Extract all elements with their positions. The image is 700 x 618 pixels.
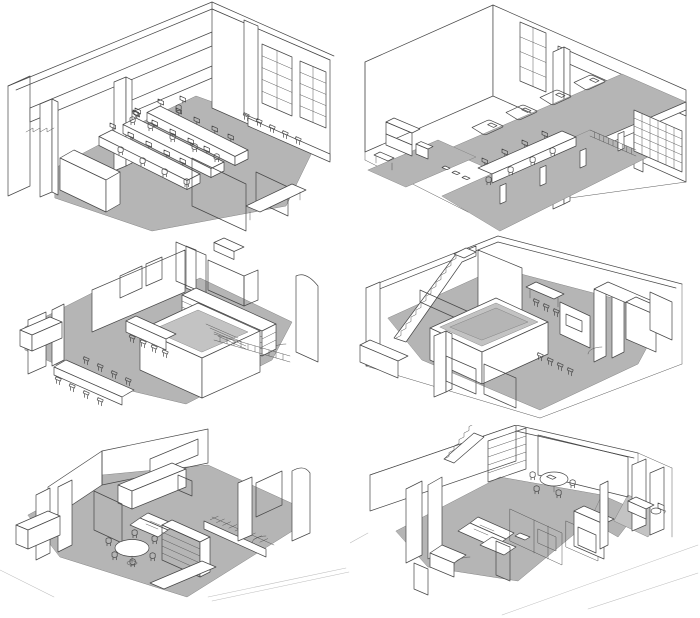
axon-panel-open-office bbox=[0, 0, 350, 232]
bathroom bbox=[628, 459, 664, 535]
axon-panel-kitchen-dining bbox=[0, 232, 350, 425]
axon-panel-mezzanine-dormitory bbox=[350, 0, 700, 232]
axon-panel-living-dining bbox=[0, 425, 350, 618]
axon-panel-stair-landing bbox=[350, 232, 700, 425]
left-walls bbox=[16, 480, 72, 560]
axonometric-series-figure bbox=[0, 0, 700, 618]
axon-panel-living-bedroom bbox=[350, 425, 700, 618]
